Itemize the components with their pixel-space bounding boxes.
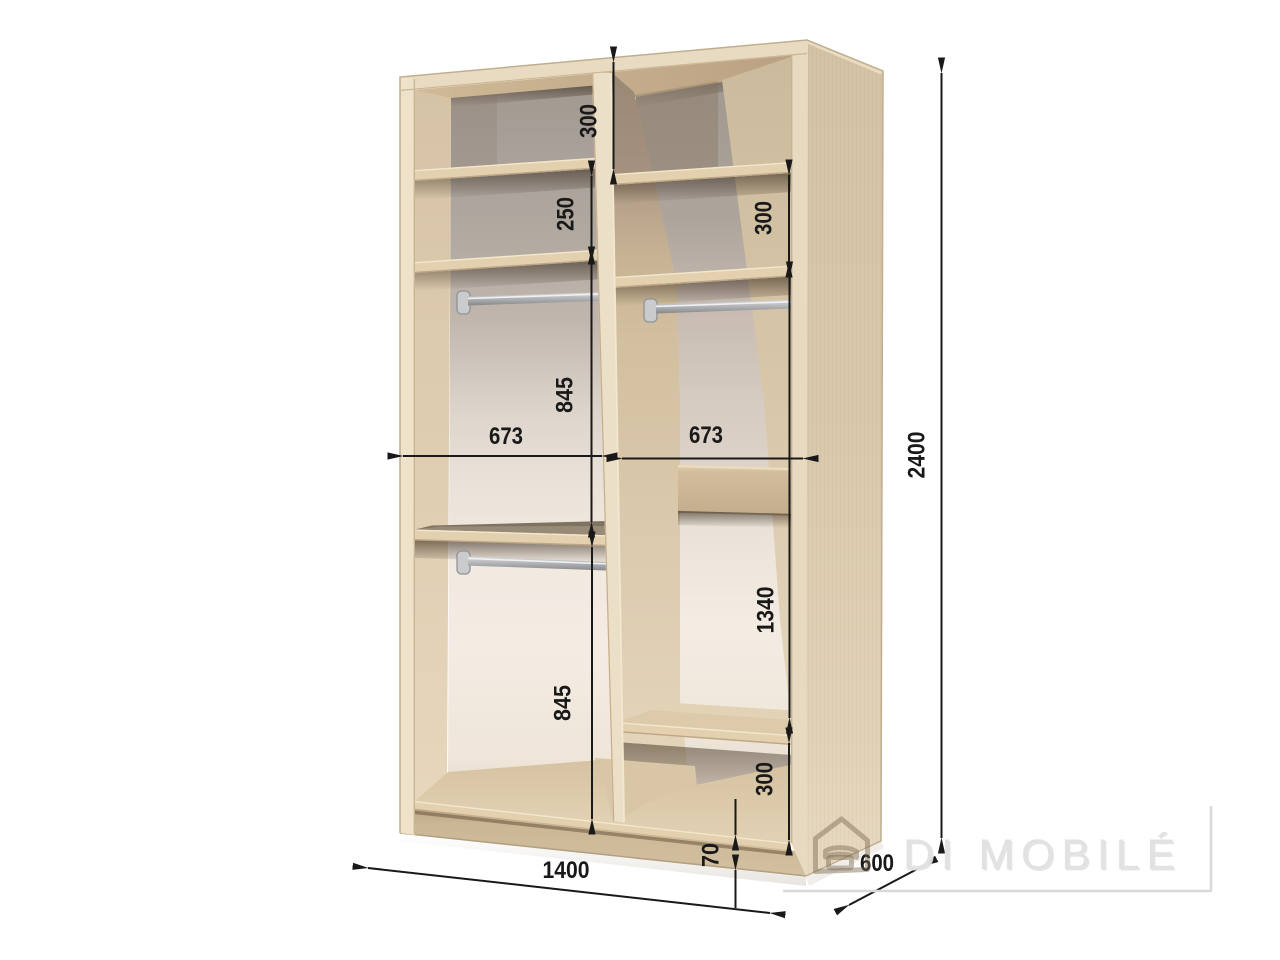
svg-text:2400: 2400	[904, 432, 931, 479]
svg-text:70: 70	[698, 843, 725, 867]
svg-text:250: 250	[553, 197, 580, 231]
svg-text:673: 673	[689, 422, 723, 449]
svg-text:845: 845	[550, 685, 577, 721]
svg-text:DI MOBILÉ: DI MOBILÉ	[903, 831, 1184, 879]
svg-text:1340: 1340	[753, 587, 780, 634]
svg-text:300: 300	[576, 104, 603, 138]
svg-text:1400: 1400	[543, 857, 590, 884]
svg-text:300: 300	[751, 201, 778, 235]
svg-text:673: 673	[489, 423, 523, 450]
svg-text:300: 300	[752, 762, 779, 796]
svg-text:845: 845	[552, 377, 579, 413]
